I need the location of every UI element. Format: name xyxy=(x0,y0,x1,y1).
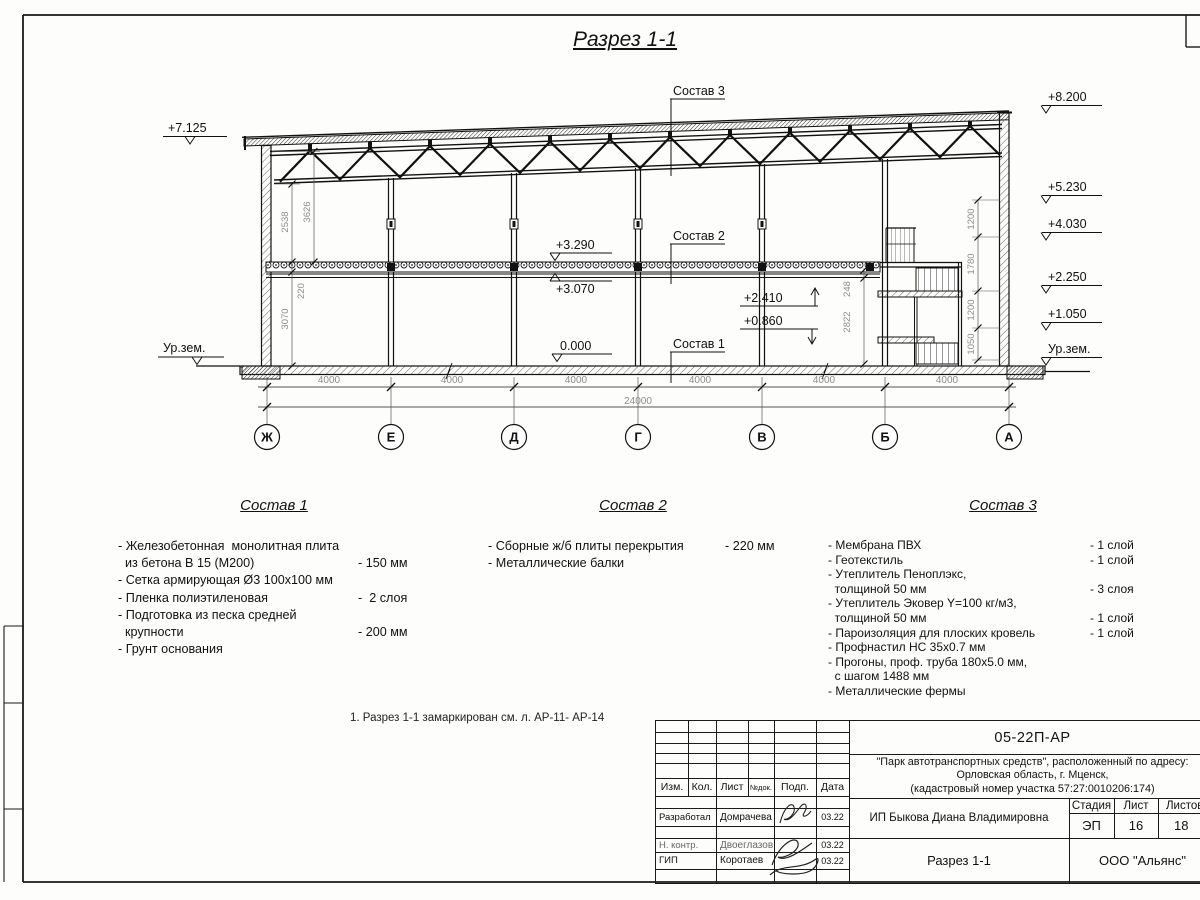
list-item: - Профнастил НС 35x0.7 мм xyxy=(828,640,1178,655)
staircase xyxy=(878,228,962,366)
signer-role: Разработал xyxy=(656,808,719,826)
elevation-label: +8.200 xyxy=(1048,90,1087,104)
project-description: "Парк автотранспортных средств", располо… xyxy=(854,754,1200,798)
leader-label: Состав 2 xyxy=(673,229,725,243)
stage-value: ЭП xyxy=(1069,813,1114,838)
axis-label: Б xyxy=(880,430,889,445)
dim-label: 4000 xyxy=(936,375,959,386)
list-item: - Железобетонная монолитная плита xyxy=(118,538,430,555)
axis-label: Г xyxy=(634,430,642,445)
list-item: - Грунт основания xyxy=(118,641,430,658)
axis-label: Ж xyxy=(260,430,273,445)
list-item: - Прогоны, проф. труба 180x5.0 мм, xyxy=(828,655,1178,670)
signer-role: ГИП xyxy=(656,852,719,869)
axis-label: В xyxy=(757,430,766,445)
col-header: Лист xyxy=(716,778,748,796)
dim-label: 1200 xyxy=(966,299,977,320)
sign-date: 03.22 xyxy=(816,808,849,826)
dim-label: 3070 xyxy=(280,308,291,329)
col-header: Кол. xyxy=(688,778,716,796)
list-item: - Пленка полиэтиленовая- 2 слоя xyxy=(118,590,430,607)
left-dimensions: 2538 3626 220 3070 xyxy=(272,148,320,370)
dim-label: 2538 xyxy=(280,211,291,232)
list-item: - Металлические балки xyxy=(488,555,778,572)
sheets-total: 18 xyxy=(1158,813,1200,838)
list-item: крупности- 200 мм xyxy=(118,624,430,641)
company-name: ООО "Альянс" xyxy=(1069,838,1200,883)
dim-label: 3626 xyxy=(302,201,313,222)
list-item: - Металлические фермы xyxy=(828,684,1178,699)
dim-label: 248 xyxy=(842,281,853,297)
list-item: - Утеплитель Пеноплэкс, xyxy=(828,567,1178,582)
client-name: ИП Быкова Диана Владимировна xyxy=(849,798,1069,838)
signer-name: Домрачева xyxy=(717,808,777,826)
composition-title: Состав 2 xyxy=(488,497,778,514)
dim-label: 4000 xyxy=(441,375,464,386)
list-item: из бетона В 15 (М200)- 150 мм xyxy=(118,555,430,572)
dim-label: 4000 xyxy=(565,375,588,386)
list-item: - Сетка армирующая Ø3 100x100 мм xyxy=(118,572,430,589)
right-dimensions: 1200 1780 1200 1050 xyxy=(966,197,1000,364)
list-item: - Утеплитель Эковер Y=100 кг/м3, xyxy=(828,596,1178,611)
dim-label: 1200 xyxy=(966,208,977,229)
elevation-label: +1.050 xyxy=(1048,307,1087,321)
col-header: Изм. xyxy=(656,778,688,796)
list-item: - Пароизоляция для плоских кровель- 1 сл… xyxy=(828,626,1178,641)
leader-label: Состав 3 xyxy=(673,84,725,98)
dim-label: 1050 xyxy=(966,333,977,354)
total-dim-label: 24000 xyxy=(624,396,652,407)
dim-label: 2822 xyxy=(842,311,853,332)
col-header: №док. xyxy=(748,778,774,796)
dim-label: 4000 xyxy=(689,375,712,386)
drawing-title: Разрез 1-1 xyxy=(520,28,730,52)
elevation-label: +4.030 xyxy=(1048,217,1087,231)
elevation-label: +7.125 xyxy=(168,121,207,135)
col-header: Дата xyxy=(816,778,849,796)
axis-label: А xyxy=(1004,430,1014,445)
sheet-title-cell: Разрез 1-1 xyxy=(849,838,1069,883)
dim-label: 4000 xyxy=(813,375,836,386)
list-item: с шагом 1488 мм xyxy=(828,669,1178,684)
bottom-dimensions: 4000 4000 4000 4000 4000 4000 24000 xyxy=(258,375,1016,425)
signature xyxy=(762,831,824,881)
axis-bubbles: Ж Е Д Г В Б А xyxy=(255,425,1022,450)
title-block: Изм. Кол. Лист №док. Подп. Дата Разработ… xyxy=(655,720,1200,884)
elevation-label: +0.860 xyxy=(744,314,783,328)
elevation-label: Ур.зем. xyxy=(1048,342,1090,356)
list-item: - Подготовка из песка средней xyxy=(118,607,430,624)
composition-list-3: Состав 3 - Мембрана ПВХ- 1 слой - Геотек… xyxy=(828,497,1178,699)
list-item: - Геотекстиль- 1 слой xyxy=(828,553,1178,568)
elevation-label: +3.070 xyxy=(556,282,595,296)
dim-label: 4000 xyxy=(318,375,341,386)
composition-list-1: Состав 1 - Железобетонная монолитная пли… xyxy=(118,497,430,658)
sheet-note: 1. Разрез 1-1 замаркирован см. л. АР-11-… xyxy=(350,712,604,724)
document-code: 05-22П-АР xyxy=(849,721,1200,754)
floor-slab xyxy=(266,262,880,278)
composition-title: Состав 1 xyxy=(118,497,430,514)
stage-label: Стадия xyxy=(1069,798,1114,813)
sheet-number: 16 xyxy=(1114,813,1158,838)
axis-label: Д xyxy=(509,430,519,445)
col-header: Подп. xyxy=(774,778,816,796)
sheet-label: Лист xyxy=(1114,798,1158,813)
elevation-label: 0.000 xyxy=(560,339,591,353)
elevation-label: Ур.зем. xyxy=(163,341,205,355)
dim-label: 1780 xyxy=(966,253,977,274)
list-item: толщиной 50 мм- 3 слоя xyxy=(828,582,1178,597)
elevation-label: +2.410 xyxy=(744,291,783,305)
list-item: - Сборные ж/б плиты перекрытия- 220 мм xyxy=(488,538,778,555)
sheets-label: Листов xyxy=(1158,798,1200,813)
composition-title: Состав 3 xyxy=(828,497,1178,514)
signer-role: Н. контр. xyxy=(656,838,719,852)
signature xyxy=(774,797,816,829)
elevation-label: +2.250 xyxy=(1048,270,1087,284)
elevation-label: +5.230 xyxy=(1048,180,1087,194)
dim-label: 220 xyxy=(296,283,307,299)
axis-label: Е xyxy=(387,430,396,445)
elevation-label: +3.290 xyxy=(556,238,595,252)
composition-list-2: Состав 2 - Сборные ж/б плиты перекрытия-… xyxy=(488,497,778,572)
list-item: толщиной 50 мм- 1 слой xyxy=(828,611,1178,626)
list-item: - Мембрана ПВХ- 1 слой xyxy=(828,538,1178,553)
drawing-sheet: 4000 4000 4000 4000 4000 4000 24000 Ж Е … xyxy=(0,0,1200,900)
stair-dimensions: 248 2822 xyxy=(842,267,868,368)
leader-label: Состав 1 xyxy=(673,337,725,351)
